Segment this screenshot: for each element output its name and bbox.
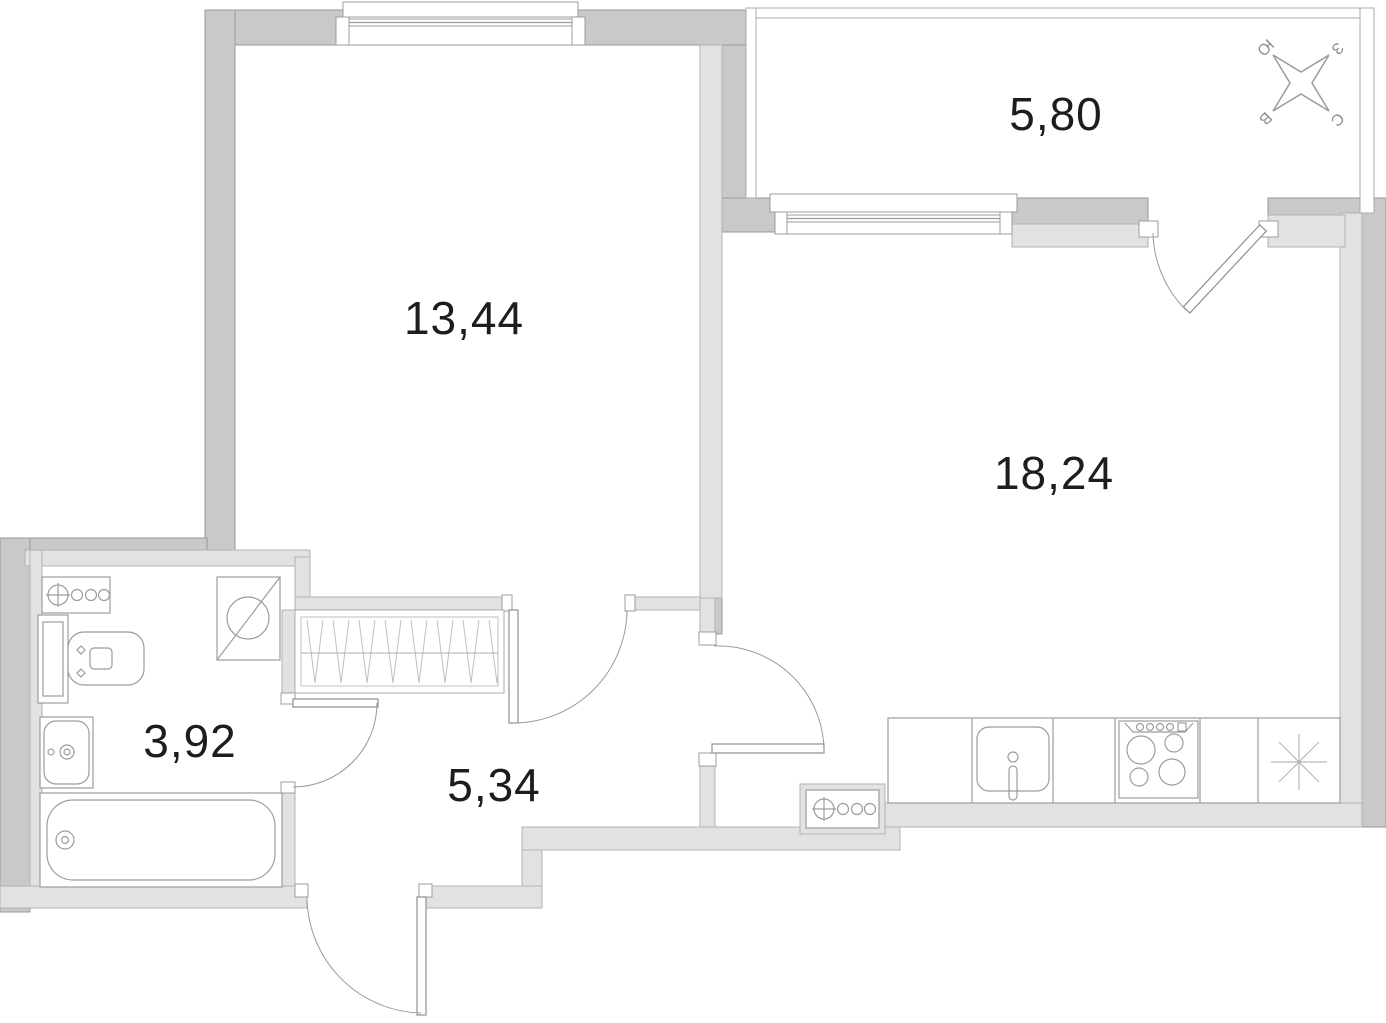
- wall-bathroom-right-lower: [282, 793, 295, 886]
- window-jamb-right: [572, 17, 585, 45]
- compass-east-label: В: [1255, 108, 1275, 128]
- fridge-icon: [1271, 734, 1327, 790]
- bathroom-door: [281, 693, 378, 793]
- door-jamb-bottom: [281, 782, 295, 793]
- window-jamb-left: [336, 17, 349, 45]
- balcony-area-label: 5,80: [1009, 88, 1103, 140]
- wall-kitchen-bottom: [880, 803, 1362, 827]
- bedroom-window: [336, 2, 585, 45]
- hallway-area-label: 5,34: [447, 759, 541, 811]
- door-jamb-bottom: [699, 753, 716, 766]
- balcony-wall-top: [746, 8, 1366, 18]
- wall-pier-window-right: [1012, 198, 1148, 224]
- door-jamb-right: [419, 884, 432, 897]
- living-window: [770, 194, 1017, 234]
- door-swing-arc: [293, 703, 377, 787]
- wardrobe-icon: [295, 610, 504, 693]
- towel-dryer-icon: [42, 577, 110, 613]
- window-sill-inner: [336, 26, 585, 45]
- vent-box-icon: [800, 784, 885, 834]
- wall-pier-light-mid: [1012, 224, 1148, 247]
- washing-machine-icon: [217, 577, 280, 660]
- door-leaf: [712, 744, 824, 753]
- balcony-door: [1139, 221, 1278, 313]
- door-jamb-left: [502, 595, 512, 611]
- door-leaf: [509, 610, 518, 723]
- window-sill-balcony: [770, 194, 1017, 212]
- door-jamb-top: [699, 632, 716, 645]
- toilet-icon: [38, 615, 144, 703]
- wall-pier-window-left: [722, 198, 775, 232]
- floor-plan: Ю З В С 13,44 5,80 18,24 3,92 5,34: [0, 0, 1386, 1023]
- wall-bathroom-left: [0, 538, 30, 912]
- bathtub-icon: [40, 793, 282, 887]
- compass-north-label: С: [1327, 109, 1347, 129]
- wall-bedroom-left: [205, 10, 235, 557]
- door-leaf: [293, 699, 378, 707]
- bedroom-area-label: 13,44: [404, 292, 524, 344]
- door-jamb-left: [295, 884, 308, 897]
- wall-entry-left: [0, 886, 307, 908]
- compass-west-label: З: [1328, 39, 1347, 58]
- door-swing-arc: [1153, 233, 1186, 310]
- wall-bedroom-bottom-right: [633, 597, 700, 610]
- door-swing-arc: [307, 897, 421, 1013]
- wall-bedroom-bottom-left: [295, 597, 504, 610]
- counter-outline: [888, 718, 1340, 803]
- wall-entry-right: [421, 886, 542, 908]
- wall-bathroom-top: [25, 550, 310, 566]
- bathroom-area-label: 3,92: [143, 715, 237, 767]
- wall-hall-living-upper: [700, 598, 715, 632]
- balcony-wall-left: [746, 8, 756, 198]
- living-kitchen-area-label: 18,24: [994, 447, 1114, 499]
- bedroom-door: [502, 595, 635, 723]
- entry-door: [295, 884, 432, 1015]
- wall-bathroom-right-upper: [282, 610, 295, 703]
- wall-bedroom-living: [700, 45, 722, 598]
- compass-icon: Ю З В С: [1253, 35, 1347, 129]
- hallway-living-door: [699, 632, 824, 766]
- door-swing-arc: [513, 610, 627, 723]
- door-leaf: [417, 897, 426, 1015]
- window-jamb-right: [1000, 212, 1012, 234]
- door-jamb-right: [625, 595, 635, 611]
- wall-right-inner: [1340, 213, 1362, 803]
- kitchen-counter: [888, 718, 1340, 803]
- balcony-wall-right: [1360, 8, 1374, 213]
- bathroom-sink-icon: [40, 717, 93, 788]
- wall-pier-light-right: [1268, 215, 1345, 247]
- window-sill-outer: [343, 2, 578, 17]
- door-jamb-left: [1139, 221, 1158, 237]
- window-jamb-left: [775, 212, 787, 234]
- wall-right-outer: [1362, 198, 1386, 827]
- door-swing-arc: [714, 646, 824, 749]
- door-leaf: [1183, 225, 1266, 313]
- wall-entry-jog: [522, 850, 542, 886]
